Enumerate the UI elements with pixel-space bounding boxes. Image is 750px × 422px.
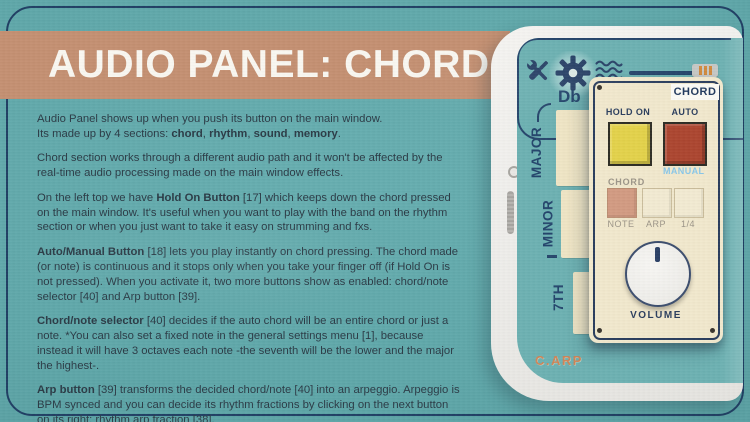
note-label: NOTE [607, 219, 635, 229]
screw-icon [597, 85, 602, 90]
screw-icon [710, 328, 715, 333]
knob-indicator [655, 247, 660, 262]
paragraph-chord-note-selector: Chord/note selector [40] decides if the … [37, 314, 461, 374]
row-label-7th: 7TH [546, 275, 570, 319]
title-banner: AUDIO PANEL: CHORD [0, 31, 510, 99]
manual-label: MANUAL [663, 166, 703, 176]
arp-button[interactable] [642, 188, 672, 218]
paragraph-auto-manual: Auto/Manual Button [18] lets you play in… [37, 245, 461, 305]
hold-on-button[interactable] [608, 122, 652, 166]
chord-section-label: CHORD [608, 177, 658, 187]
volume-label: VOLUME [589, 310, 723, 321]
top-slider-handle[interactable] [692, 64, 718, 77]
paragraph-intro: Audio Panel shows up when you push its b… [37, 112, 461, 142]
auto-manual-button[interactable] [663, 122, 707, 166]
row-label-minor: MINOR [536, 190, 560, 256]
note-selector-button[interactable] [607, 188, 637, 218]
paragraph-audio-path: Chord section works through a different … [37, 151, 461, 181]
carp-logo: C.ARP [535, 353, 583, 368]
auto-label: AUTO [667, 107, 703, 117]
volume-knob[interactable] [625, 241, 691, 307]
row-label-major: MAJOR [525, 115, 549, 190]
top-slider-track [629, 71, 695, 75]
paragraph-hold-on: On the left top we have Hold On Button [… [37, 191, 461, 236]
chord-panel: CHORD HOLD ON AUTO MANUAL CHORD NOTE ARP… [589, 77, 723, 343]
screw-icon [597, 328, 602, 333]
arp-fraction-button[interactable] [674, 188, 704, 218]
description-text: Audio Panel shows up when you push its b… [37, 112, 461, 422]
phone-side-button[interactable] [507, 191, 514, 234]
fraction-label: 1/4 [674, 219, 702, 229]
promo-screenshot: AUDIO PANEL: CHORD Audio Panel shows up … [0, 0, 750, 422]
panel-title: CHORD [671, 84, 719, 100]
arp-label: ARP [642, 219, 670, 229]
hold-on-label: HOLD ON [603, 107, 653, 117]
gear-icon[interactable] [555, 55, 591, 91]
chord-root-label: Db [558, 87, 581, 107]
paragraph-arp-button: Arp button [39] transforms the decided c… [37, 383, 461, 422]
page-title: AUDIO PANEL: CHORD [48, 43, 490, 87]
